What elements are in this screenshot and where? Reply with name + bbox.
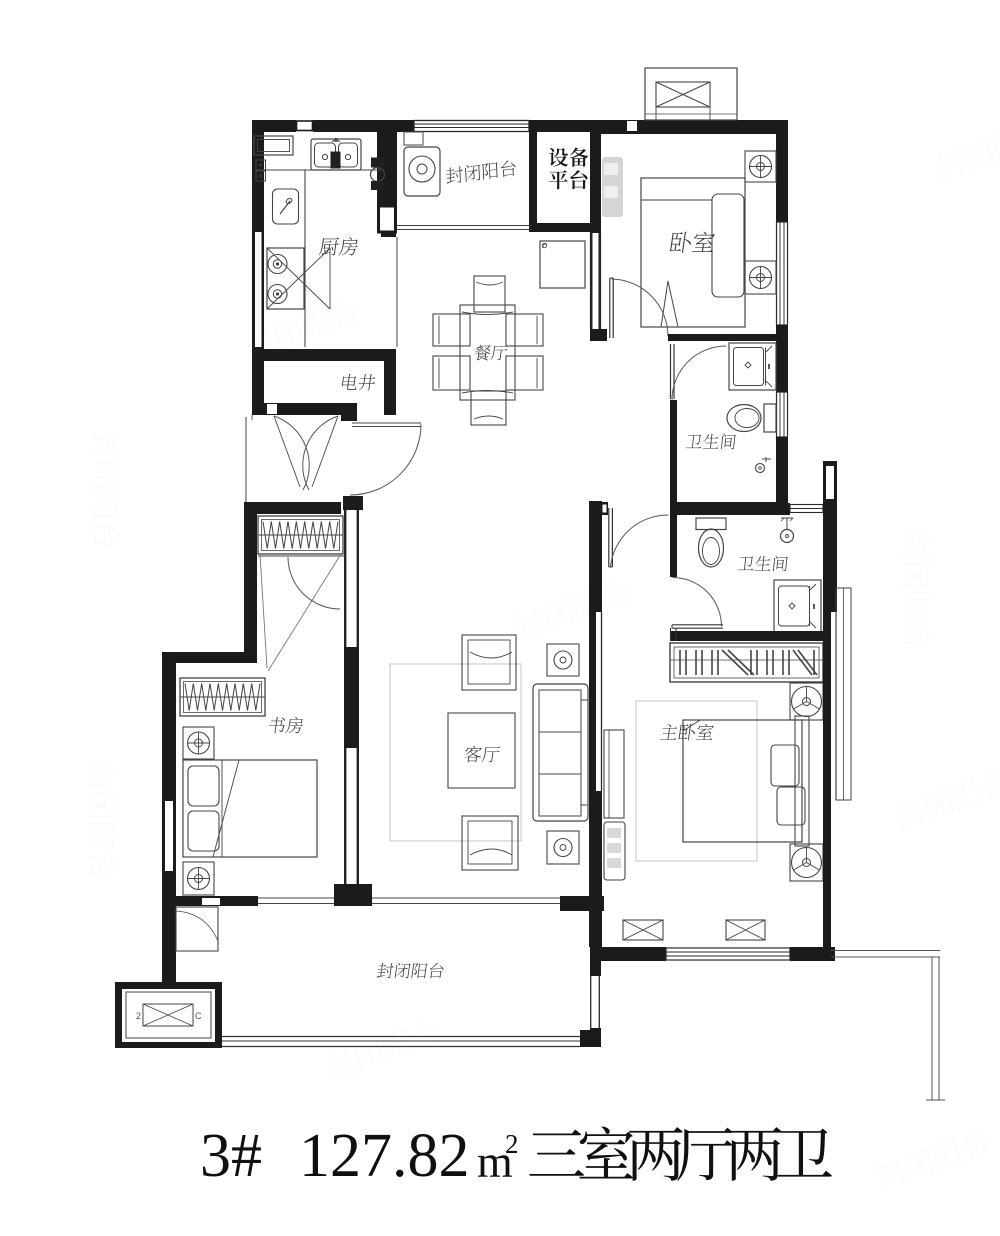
svg-text:C: C	[195, 1011, 202, 1021]
svg-text:2: 2	[505, 1129, 519, 1159]
svg-text:2: 2	[136, 1011, 141, 1021]
svg-text:127.82: 127.82	[299, 1122, 470, 1190]
svg-text:3#: 3#	[200, 1122, 262, 1190]
